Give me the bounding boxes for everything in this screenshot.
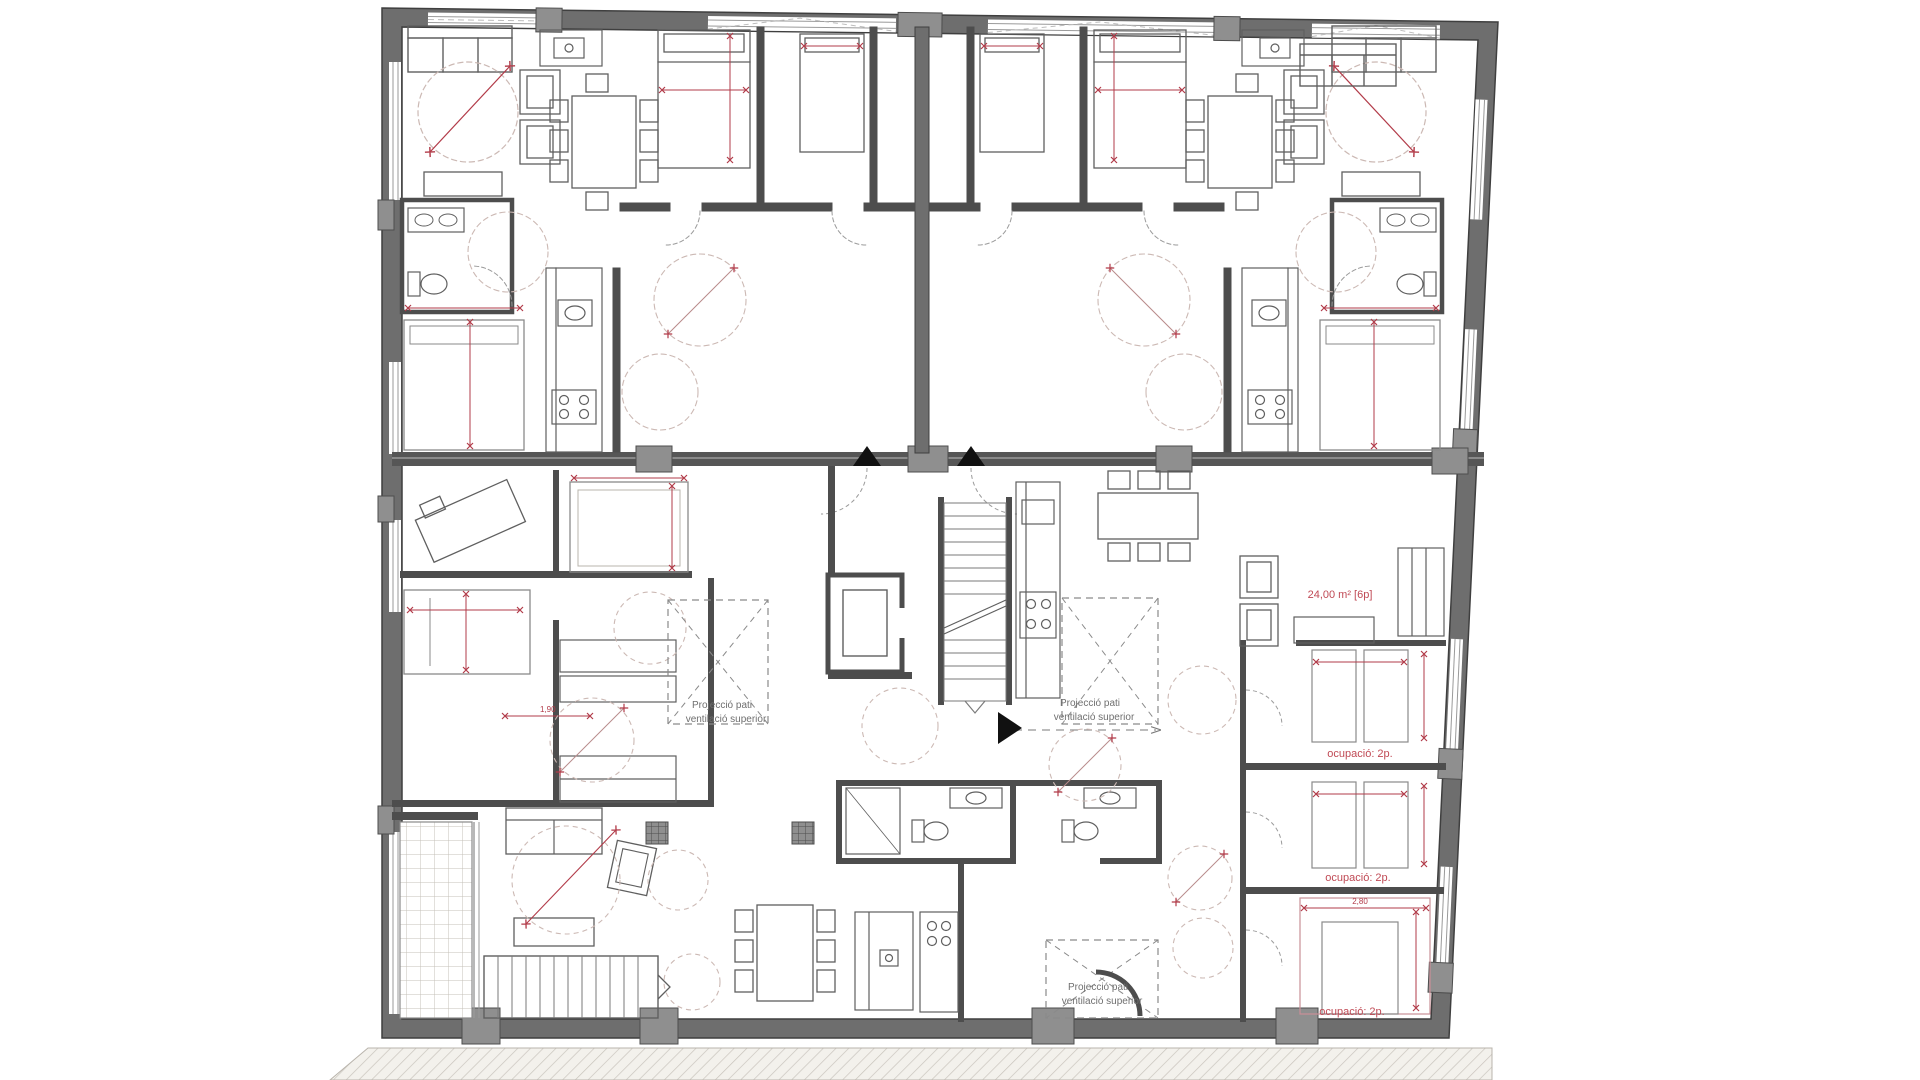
turning-circle xyxy=(418,62,518,162)
occupancy-label: ocupació: 2p. xyxy=(1319,1006,1384,1018)
dimension-label: 2,80 xyxy=(1352,897,1368,906)
door-swing xyxy=(472,266,512,306)
bathroom xyxy=(846,788,1002,854)
patio-label: ventilació superior xyxy=(686,714,767,725)
bed xyxy=(658,30,750,168)
bed-dimensioned xyxy=(404,590,530,674)
patio-projection-right: Projecció pati ventilació superior xyxy=(998,598,1158,744)
direction-arrow xyxy=(998,712,1022,744)
lower-middle-zone xyxy=(646,482,1162,1022)
kitchen-counter xyxy=(920,912,958,1012)
bedroom-twin: ocupació: 2p. xyxy=(1312,650,1424,760)
sofa xyxy=(1300,44,1396,86)
floor-plan-sheet: 1,90 Projecció pati ventilaci xyxy=(0,0,1920,1080)
occupancy-label: ocupació: 2p. xyxy=(1327,748,1392,760)
party-wall xyxy=(915,27,929,453)
vent-shaft xyxy=(792,822,814,844)
dimension-label: 1,90 xyxy=(540,705,556,714)
toilet-icon xyxy=(912,820,924,842)
patio-label: Projecció pati xyxy=(1060,698,1120,709)
bathroom xyxy=(1062,788,1136,842)
sideboard xyxy=(1294,617,1374,643)
sideboard xyxy=(514,918,594,946)
toilet-icon xyxy=(1062,820,1074,842)
armchair xyxy=(520,70,560,164)
apartment-lower-left: 1,90 xyxy=(392,469,714,1018)
dining-table xyxy=(1098,471,1198,561)
bed xyxy=(800,34,864,152)
elevator xyxy=(828,575,902,672)
door-swing xyxy=(1246,690,1282,726)
desk xyxy=(410,469,525,563)
column-block xyxy=(1032,1008,1074,1044)
wardrobe xyxy=(1398,548,1444,636)
vent-shaft xyxy=(646,822,668,844)
bedroom-double: 2,80 ocupació: 2p. xyxy=(1300,897,1430,1018)
door-swing xyxy=(1246,930,1282,966)
column-block xyxy=(640,1008,678,1044)
kitchen-counter-strip xyxy=(546,268,602,452)
patio-label: ventilació superior xyxy=(1062,996,1143,1007)
toilet-icon xyxy=(408,272,420,296)
apartment-upper-left xyxy=(402,26,915,452)
apartment-lower-right: 24,00 m² [6p] ocupació: 2p. ocupació: 2p… xyxy=(1098,471,1446,1022)
central-core xyxy=(821,446,1017,713)
patio-label: Projecció pati xyxy=(692,700,752,711)
terrace xyxy=(392,812,479,1018)
floor-plan-drawing: 1,90 Projecció pati ventilaci xyxy=(0,0,1920,1080)
sidewalk-hatch xyxy=(330,1048,1492,1080)
patio-projection-bottom: Projecció pati ventilació superior xyxy=(1046,940,1158,1018)
kitchen-counter-top xyxy=(540,30,602,66)
bedroom-twin: ocupació: 2p. xyxy=(1312,782,1424,884)
sideboard xyxy=(424,172,502,196)
bathroom xyxy=(402,200,512,312)
apartment-upper-right xyxy=(929,26,1442,452)
stove-icon xyxy=(552,390,596,424)
stair-direction-arrow xyxy=(965,701,985,713)
bed-dimensioned xyxy=(570,478,688,572)
bed-dimensioned xyxy=(404,308,524,450)
sofa xyxy=(408,26,512,72)
dining-table xyxy=(735,905,835,1001)
wardrobe xyxy=(560,640,676,802)
armchair xyxy=(1240,556,1278,646)
occupancy-label: ocupació: 2p. xyxy=(1325,872,1390,884)
patio-label: ventilació superior xyxy=(1054,712,1135,723)
patio-label: Projecció pati xyxy=(1068,982,1128,993)
dining-table xyxy=(550,74,658,210)
staircase xyxy=(938,497,1012,713)
patio-projection-left: Projecció pati ventilació superior xyxy=(668,600,768,725)
area-label: 24,00 m² [6p] xyxy=(1308,589,1373,601)
door-swing xyxy=(1246,812,1282,848)
kitchen-island xyxy=(855,912,913,1010)
living-room xyxy=(506,808,657,946)
kitchen-counter-strip xyxy=(1016,482,1060,698)
